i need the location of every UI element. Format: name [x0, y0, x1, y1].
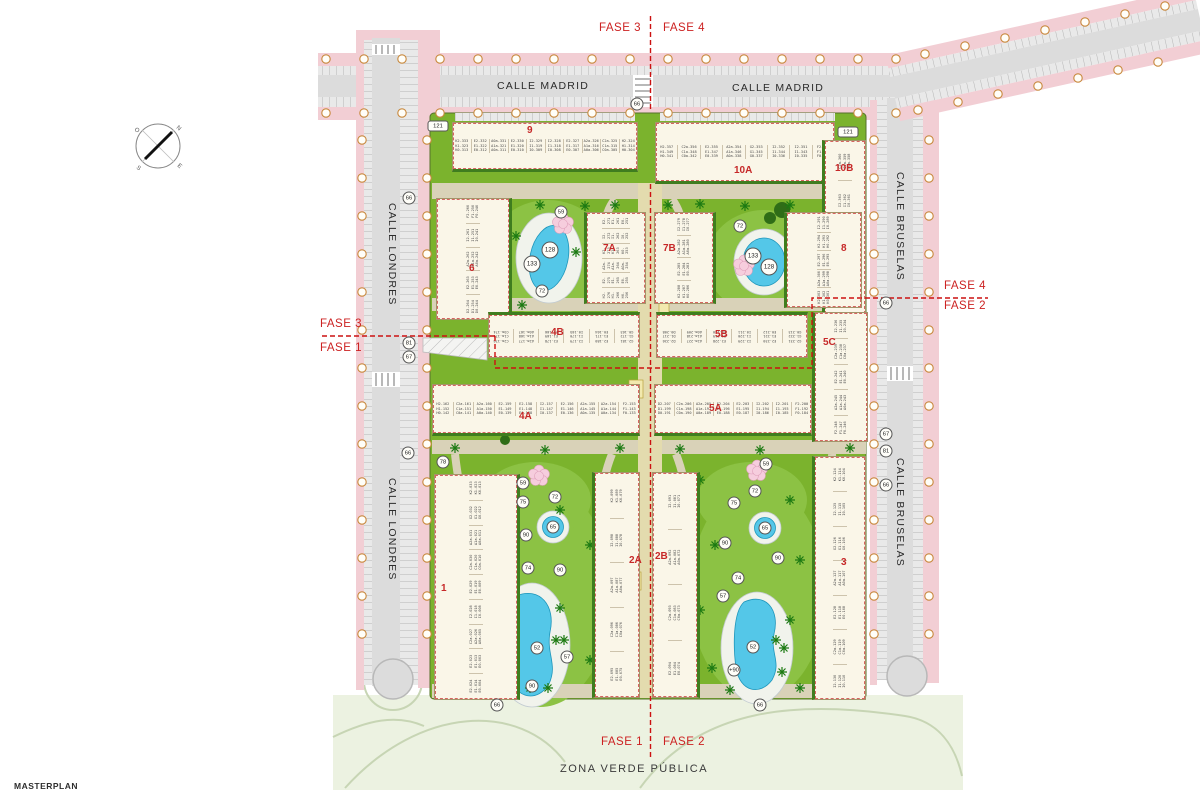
count-marker-59: 59 — [517, 477, 530, 490]
count-marker-90: +90 — [728, 664, 741, 677]
count-marker-133: 133 — [524, 256, 541, 273]
count-marker-65: 65 — [547, 521, 560, 534]
count-marker-90: 90 — [719, 537, 732, 550]
count-marker-67: 67 — [880, 428, 893, 441]
count-marker-133: 133 — [745, 248, 762, 265]
count-marker-121: 121 — [838, 127, 859, 138]
count-marker-72: 72 — [749, 485, 762, 498]
count-marker-57: 57 — [561, 651, 574, 664]
count-marker-59: 59 — [760, 458, 773, 471]
count-marker-90: 90 — [554, 564, 567, 577]
count-marker-66: 66 — [880, 479, 893, 492]
count-marker-65: 65 — [759, 522, 772, 535]
count-marker-72: 72 — [734, 220, 747, 233]
count-marker-75: 75 — [517, 496, 530, 509]
count-marker-128: 128 — [542, 242, 559, 259]
count-marker-72: 72 — [549, 491, 562, 504]
count-marker-66: 66 — [631, 98, 644, 111]
masterplan-canvas: K2-333K1-323K0-313E2-332E1-322E0-312A0a-… — [0, 0, 1200, 800]
count-marker-67: 67 — [403, 351, 416, 364]
count-marker-66: 66 — [402, 447, 415, 460]
count-marker-81: 81 — [880, 445, 893, 458]
count-marker-66: 66 — [754, 699, 767, 712]
count-marker-90: 90 — [520, 529, 533, 542]
plan-title: MASTERPLAN — [14, 781, 78, 791]
count-marker-81: 81 — [403, 337, 416, 350]
count-marker-128: 128 — [761, 259, 778, 276]
markers-layer: 1211216666666666666681676781785959591281… — [0, 0, 1200, 800]
count-marker-66: 66 — [403, 192, 416, 205]
count-marker-57: 57 — [717, 590, 730, 603]
count-marker-72: 72 — [536, 285, 549, 298]
count-marker-78: 78 — [437, 456, 450, 469]
count-marker-74: 74 — [732, 572, 745, 585]
count-marker-75: 75 — [728, 497, 741, 510]
count-marker-52: 52 — [531, 642, 544, 655]
count-marker-66: 66 — [491, 699, 504, 712]
count-marker-59: 59 — [555, 206, 568, 219]
count-marker-52: 52 — [747, 641, 760, 654]
count-marker-90: 90 — [772, 552, 785, 565]
count-marker-74: 74 — [522, 562, 535, 575]
count-marker-66: 66 — [880, 297, 893, 310]
count-marker-90: 90 — [526, 680, 539, 693]
count-marker-121: 121 — [428, 121, 449, 132]
